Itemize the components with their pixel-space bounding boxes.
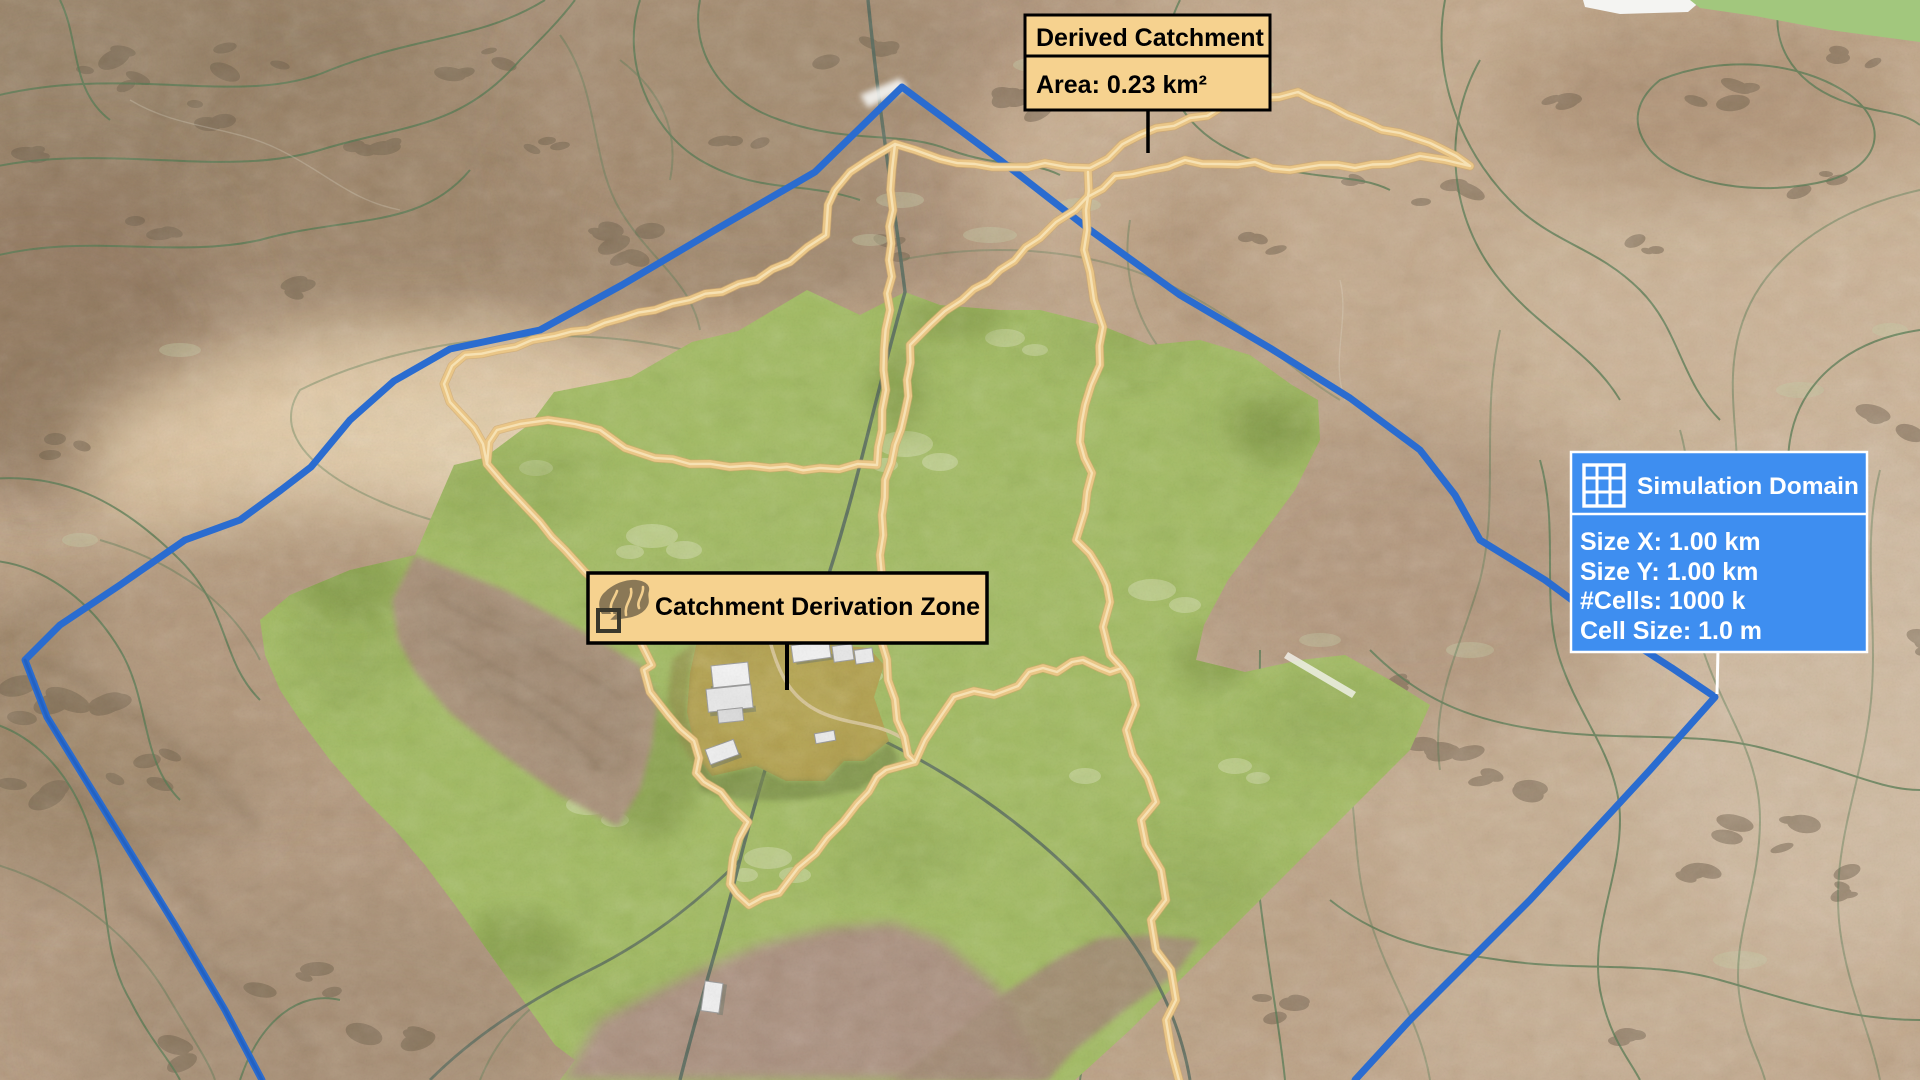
svg-text:Cell Size: 1.0 m: Cell Size: 1.0 m [1580, 617, 1762, 645]
svg-text:Size X: 1.00 km: Size X: 1.00 km [1580, 528, 1761, 556]
svg-text:Derived Catchment: Derived Catchment [1036, 24, 1265, 52]
svg-text:Area: 0.23 km²: Area: 0.23 km² [1036, 71, 1207, 99]
svg-text:Catchment Derivation Zone: Catchment Derivation Zone [655, 593, 980, 621]
svg-text:Simulation Domain: Simulation Domain [1637, 473, 1859, 500]
svg-text:#Cells: 1000 k: #Cells: 1000 k [1580, 587, 1745, 615]
svg-text:Size Y: 1.00 km: Size Y: 1.00 km [1580, 558, 1758, 586]
